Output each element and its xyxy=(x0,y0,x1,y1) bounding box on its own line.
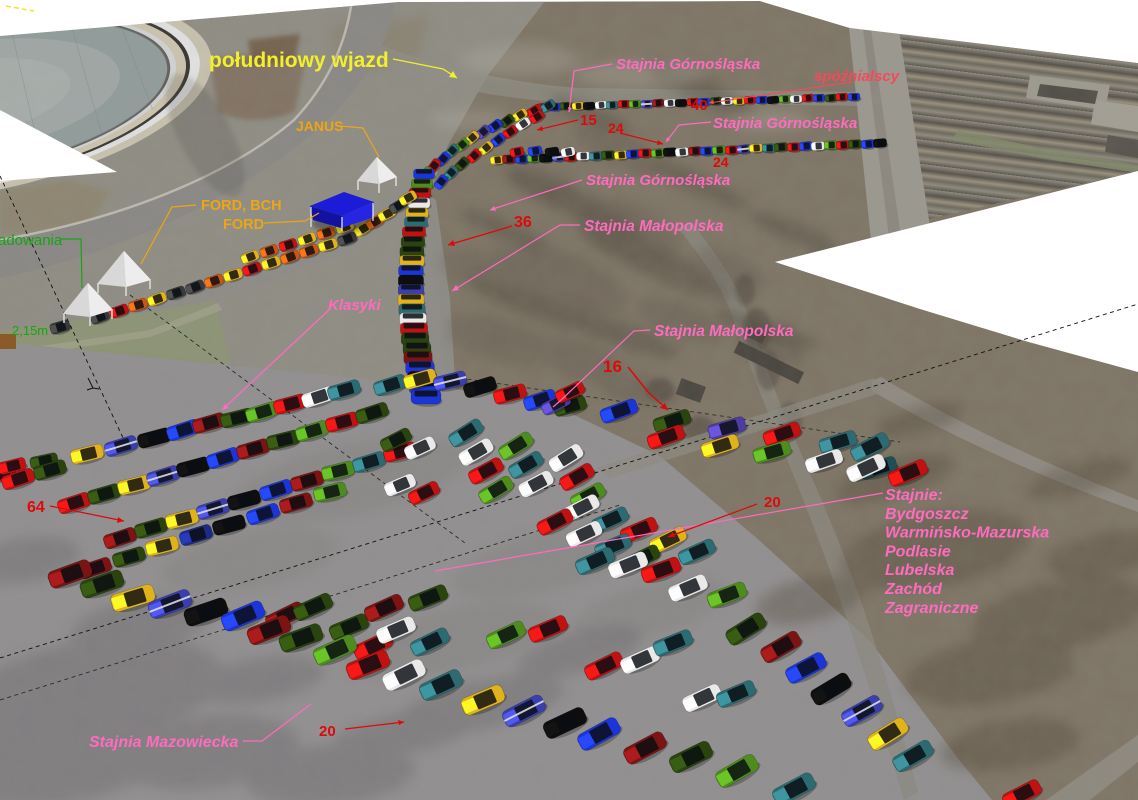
svg-text:Stajnia Górnośląska: Stajnia Górnośląska xyxy=(713,115,857,132)
svg-text:Stajnia Mazowiecka: Stajnia Mazowiecka xyxy=(89,734,238,751)
svg-text:Stajnia Górnośląska: Stajnia Górnośląska xyxy=(586,172,730,189)
svg-text:Stajnia Górnośląska: Stajnia Górnośląska xyxy=(616,56,760,73)
svg-text:Stajnia Małopolska: Stajnia Małopolska xyxy=(584,218,724,235)
svg-text:20: 20 xyxy=(319,723,336,740)
svg-text:20: 20 xyxy=(764,494,781,511)
svg-text:Klasyki: Klasyki xyxy=(328,297,381,314)
svg-text:2,15m: 2,15m xyxy=(12,323,48,338)
svg-text:południowy wjazd: południowy wjazd xyxy=(209,49,389,72)
svg-text:JANUS: JANUS xyxy=(296,118,343,134)
svg-text:36: 36 xyxy=(514,214,532,231)
svg-text:24: 24 xyxy=(608,120,624,136)
svg-text:24: 24 xyxy=(713,154,729,170)
svg-text:spóźnialscy: spóźnialscy xyxy=(814,68,900,85)
svg-text:adowania: adowania xyxy=(0,232,63,249)
svg-text:64: 64 xyxy=(27,499,45,516)
svg-text:FORD, BCH: FORD, BCH xyxy=(201,198,282,214)
svg-text:Stajnia Małopolska: Stajnia Małopolska xyxy=(654,323,794,340)
svg-text:FORD: FORD xyxy=(223,217,264,233)
svg-text:40: 40 xyxy=(691,97,708,114)
svg-text:16: 16 xyxy=(603,357,622,376)
svg-text:15: 15 xyxy=(580,112,597,129)
